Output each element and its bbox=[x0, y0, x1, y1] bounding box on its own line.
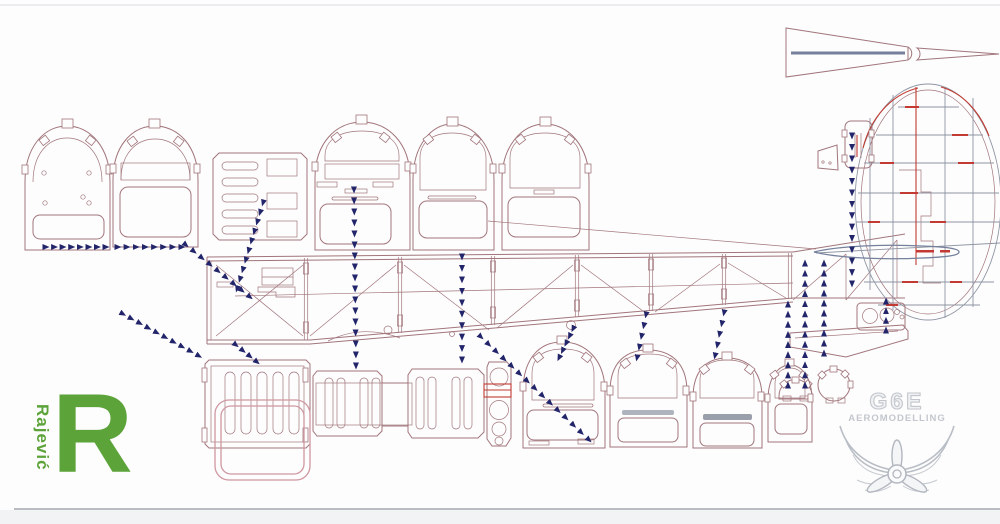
tapered-tail-spar bbox=[786, 28, 999, 77]
below-sheet-area bbox=[0, 510, 1000, 524]
arrow-to-sheet-part bbox=[236, 345, 257, 362]
doubler-with-lightening-holes bbox=[484, 362, 511, 446]
slotted-block-part bbox=[842, 121, 874, 168]
notched-disc-former-1 bbox=[779, 377, 812, 401]
aft-former-1 bbox=[520, 336, 607, 448]
former-bulkhead-3 bbox=[312, 115, 411, 250]
rajevic-logo: Rajević R bbox=[30, 392, 116, 500]
arrow-tray-to-nose bbox=[237, 203, 263, 289]
tail-boom-frame bbox=[793, 170, 941, 300]
g6e-logo: G6E AEROMODELLING bbox=[822, 388, 972, 510]
propeller-icon bbox=[865, 440, 929, 495]
flexible-slotted-plank bbox=[313, 369, 484, 438]
tail-fin-structure bbox=[814, 84, 1000, 320]
former-bulkhead-4 bbox=[410, 117, 496, 250]
g6e-wings-propeller-emblem bbox=[823, 424, 971, 508]
arrow-former-to-sheet bbox=[123, 314, 199, 356]
former-bulkhead-2 bbox=[110, 119, 200, 247]
fuselage-side-frame bbox=[207, 221, 816, 344]
arrow-long-diagonal bbox=[481, 337, 589, 440]
aft-former-3 bbox=[690, 352, 764, 448]
g6e-logo-title: G6E bbox=[822, 388, 972, 415]
servo-tray-plate bbox=[213, 153, 307, 240]
former-bulkhead-5 bbox=[499, 117, 591, 250]
plan-sheet: Rajević R G6E AEROMODELLING bbox=[0, 0, 1000, 524]
rajevic-logo-initial: R bbox=[52, 378, 133, 490]
aft-former-2 bbox=[607, 344, 689, 447]
arrow-to-nose-top bbox=[186, 245, 250, 297]
aft-former-4 bbox=[765, 359, 813, 442]
rajevic-logo-text: Rajević bbox=[32, 404, 52, 496]
tail-post-with-holes bbox=[857, 303, 905, 330]
small-gusset-part bbox=[818, 145, 838, 170]
hatch-outline-overlay bbox=[215, 400, 310, 480]
arrow-to-aft-former3 bbox=[715, 313, 724, 356]
g6e-logo-subtitle: AEROMODELLING bbox=[822, 413, 972, 424]
slotted-sheet-part bbox=[202, 360, 310, 448]
former-bulkhead-1 bbox=[22, 119, 112, 250]
